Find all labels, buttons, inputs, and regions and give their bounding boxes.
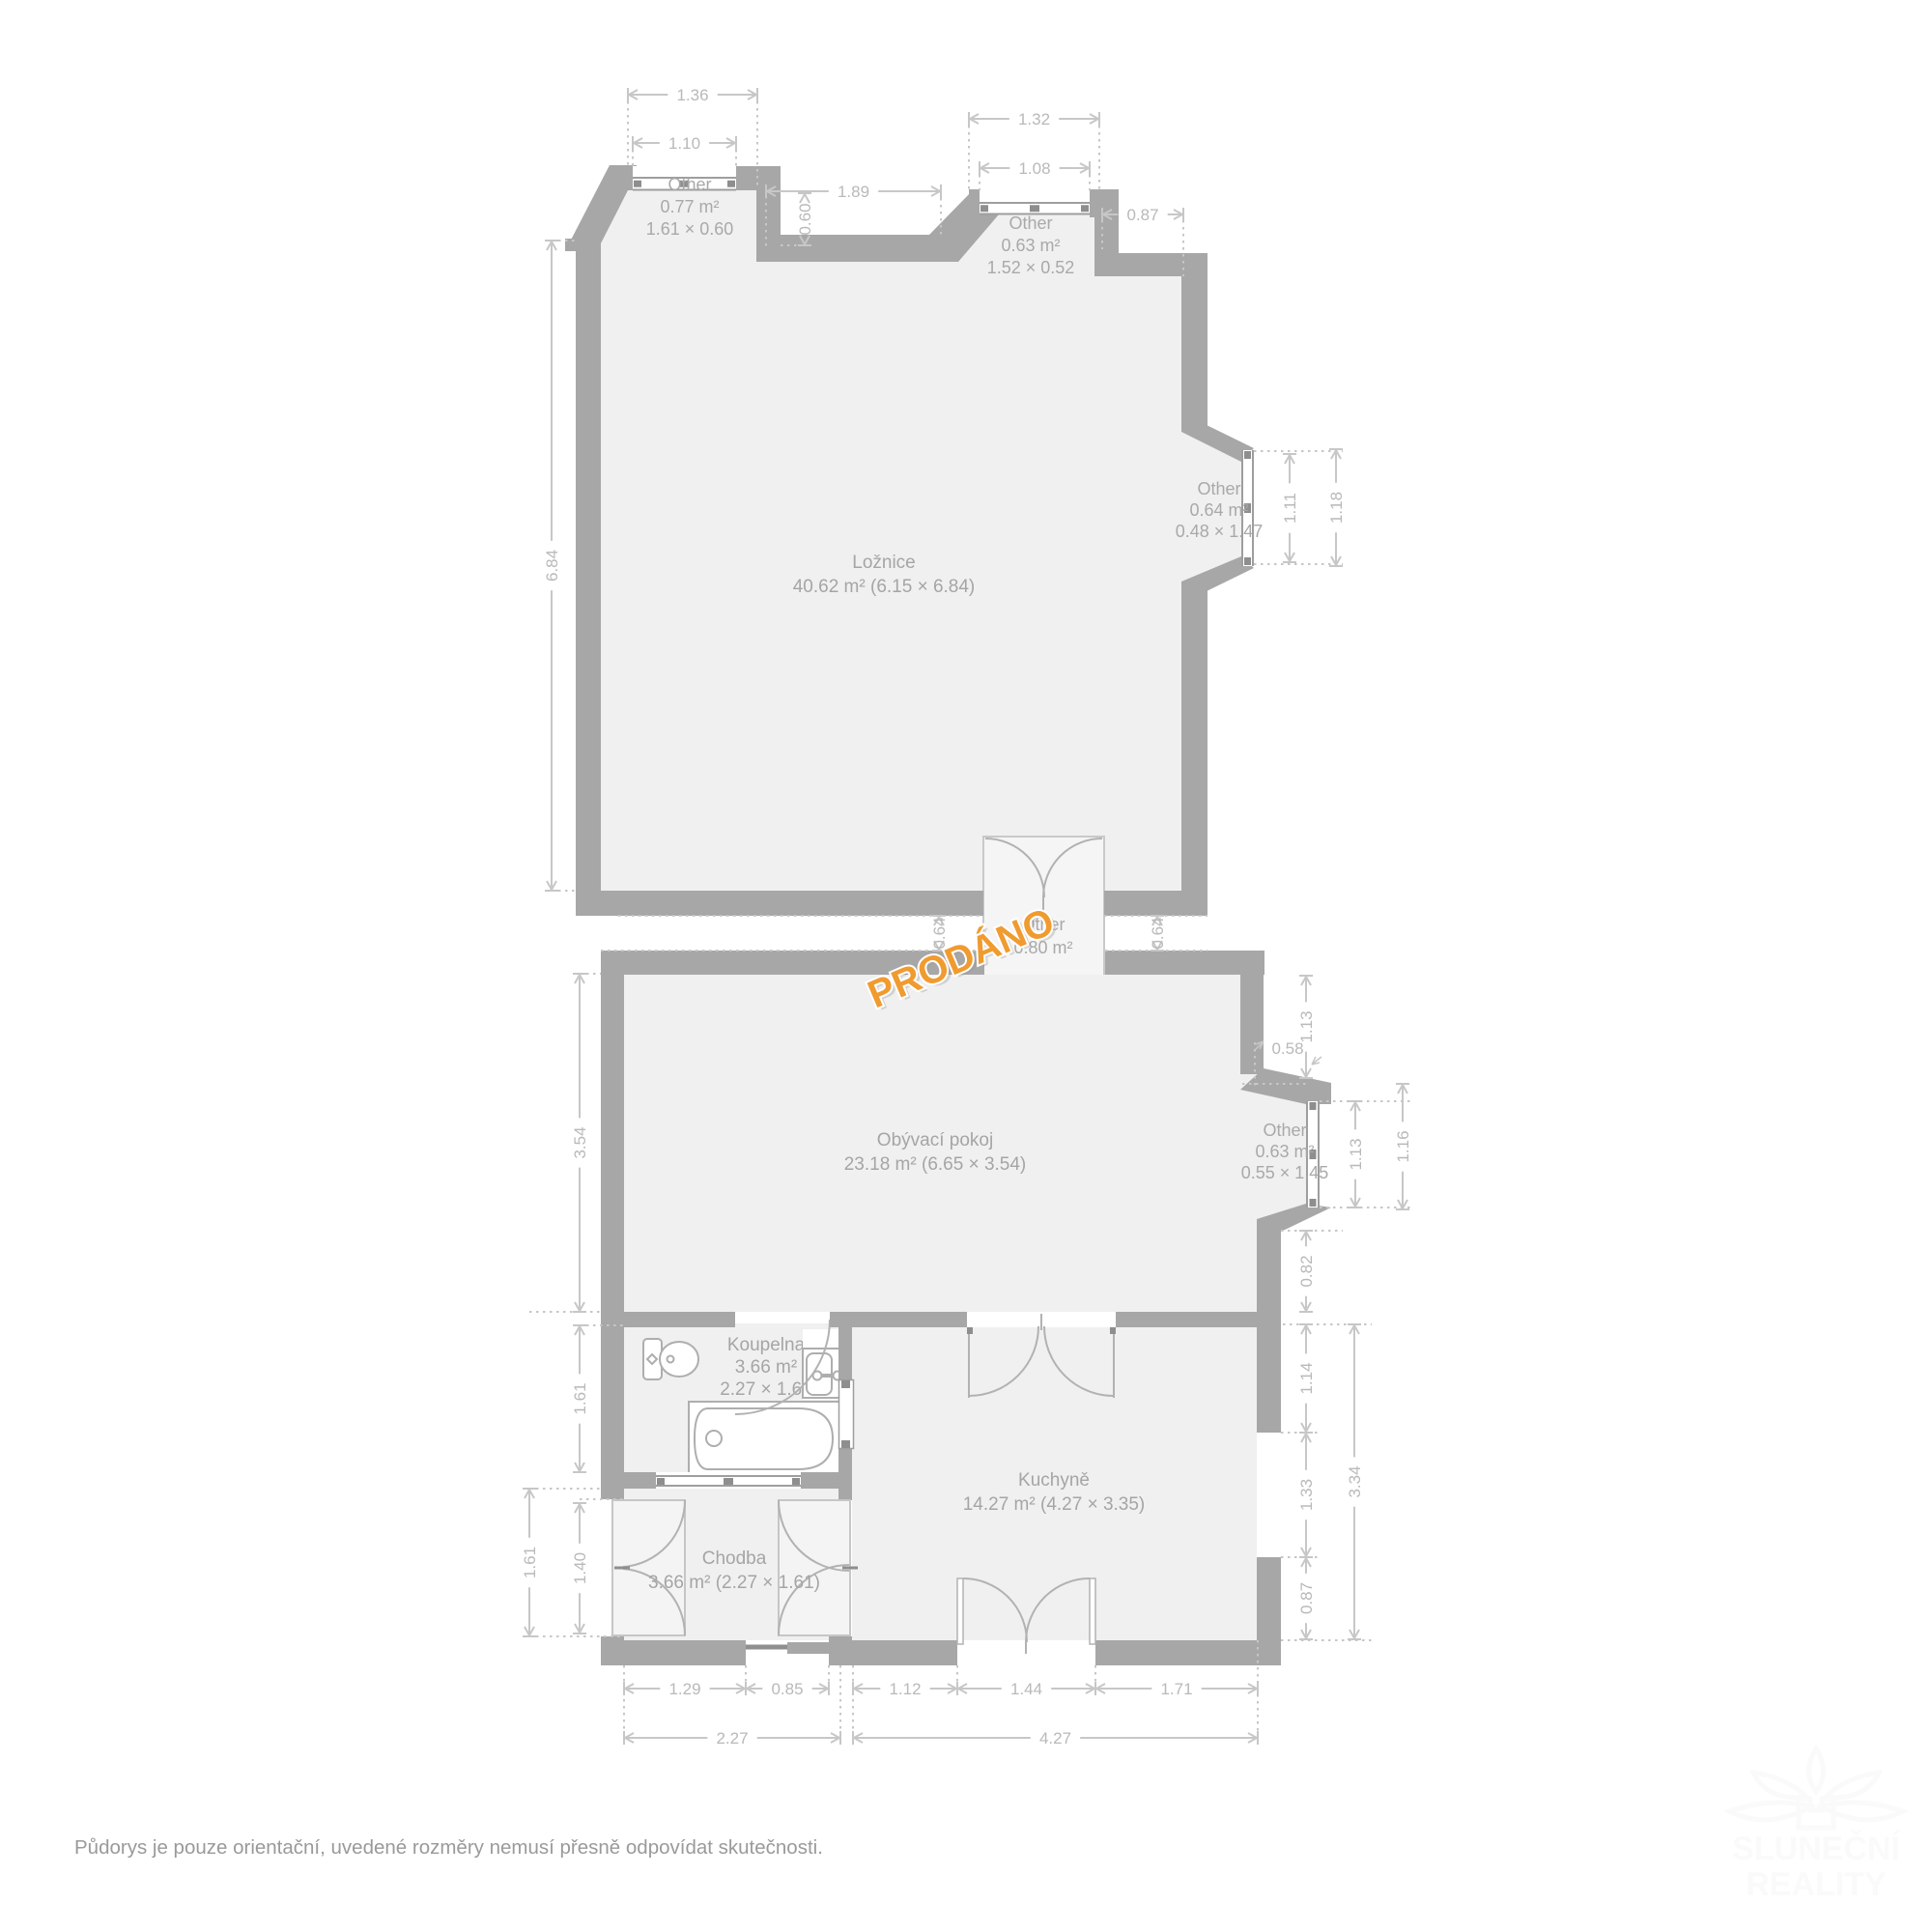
svg-text:14.27 m² (4.27 × 3.35): 14.27 m² (4.27 × 3.35)	[963, 1494, 1146, 1515]
svg-text:1.89: 1.89	[838, 183, 869, 201]
svg-text:0.55 × 1.45: 0.55 × 1.45	[1241, 1163, 1329, 1182]
svg-text:0.64: 0.64	[1149, 917, 1167, 949]
svg-text:1.12: 1.12	[889, 1680, 921, 1698]
svg-text:1.44: 1.44	[1010, 1680, 1042, 1698]
svg-text:0.63 m²: 0.63 m²	[1001, 236, 1060, 255]
svg-text:1.18: 1.18	[1327, 492, 1346, 524]
svg-text:1.14: 1.14	[1297, 1362, 1316, 1394]
svg-text:3.66 m² (2.27 × 1.61): 3.66 m² (2.27 × 1.61)	[648, 1573, 820, 1593]
svg-text:1.13: 1.13	[1347, 1138, 1365, 1170]
svg-text:Other: Other	[1197, 479, 1240, 498]
svg-text:REALITY: REALITY	[1746, 1866, 1887, 1903]
svg-text:1.08: 1.08	[1018, 159, 1050, 178]
svg-text:0.48 × 1.47: 0.48 × 1.47	[1176, 522, 1264, 541]
svg-text:Obývací pokoj: Obývací pokoj	[877, 1130, 993, 1151]
svg-text:0.58: 0.58	[1271, 1039, 1303, 1058]
svg-text:Other: Other	[668, 175, 711, 194]
svg-text:1.61: 1.61	[571, 1382, 589, 1414]
svg-text:Kuchyně: Kuchyně	[1018, 1470, 1090, 1491]
svg-text:6.84: 6.84	[543, 550, 561, 582]
svg-text:0.87: 0.87	[1126, 206, 1158, 224]
svg-text:1.10: 1.10	[668, 134, 700, 153]
svg-text:0.64 m²: 0.64 m²	[1189, 500, 1248, 520]
svg-text:Other: Other	[1263, 1121, 1306, 1140]
svg-text:4.27: 4.27	[1039, 1729, 1071, 1747]
svg-text:0.63 m²: 0.63 m²	[1255, 1142, 1314, 1161]
svg-text:Ložnice: Ložnice	[852, 553, 916, 573]
svg-text:1.61 × 0.60: 1.61 × 0.60	[646, 219, 734, 239]
svg-text:SLUNEČNÍ: SLUNEČNÍ	[1732, 1830, 1901, 1867]
svg-text:3.34: 3.34	[1346, 1465, 1364, 1497]
svg-text:1.16: 1.16	[1394, 1130, 1412, 1162]
svg-text:1.32: 1.32	[1018, 110, 1050, 128]
svg-text:3.66 m²: 3.66 m²	[735, 1357, 797, 1378]
svg-text:0.60: 0.60	[796, 203, 814, 235]
svg-text:40.62 m² (6.15 × 6.84): 40.62 m² (6.15 × 6.84)	[793, 577, 976, 597]
svg-text:Koupelna: Koupelna	[727, 1335, 806, 1355]
svg-text:1.36: 1.36	[676, 86, 708, 104]
svg-text:Půdorys je pouze orientační, u: Půdorys je pouze orientační, uvedené roz…	[74, 1836, 823, 1859]
svg-text:0.77 m²: 0.77 m²	[660, 197, 719, 216]
svg-text:1.52 × 0.52: 1.52 × 0.52	[987, 258, 1075, 277]
svg-text:23.18 m² (6.65 × 3.54): 23.18 m² (6.65 × 3.54)	[844, 1154, 1027, 1175]
svg-text:1.33: 1.33	[1297, 1479, 1316, 1511]
svg-text:2.27: 2.27	[716, 1729, 748, 1747]
svg-text:3.54: 3.54	[571, 1126, 589, 1158]
svg-text:0.85: 0.85	[771, 1680, 803, 1698]
svg-text:Other: Other	[1009, 213, 1052, 233]
svg-text:Chodba: Chodba	[702, 1548, 767, 1569]
svg-text:1.11: 1.11	[1281, 493, 1299, 524]
svg-text:1.61: 1.61	[521, 1547, 539, 1578]
svg-text:0.87: 0.87	[1297, 1582, 1316, 1614]
svg-text:0.82: 0.82	[1297, 1255, 1316, 1287]
svg-text:1.29: 1.29	[668, 1680, 700, 1698]
svg-text:1.71: 1.71	[1160, 1680, 1192, 1698]
svg-text:1.13: 1.13	[1297, 1010, 1316, 1042]
svg-text:1.40: 1.40	[571, 1552, 589, 1584]
